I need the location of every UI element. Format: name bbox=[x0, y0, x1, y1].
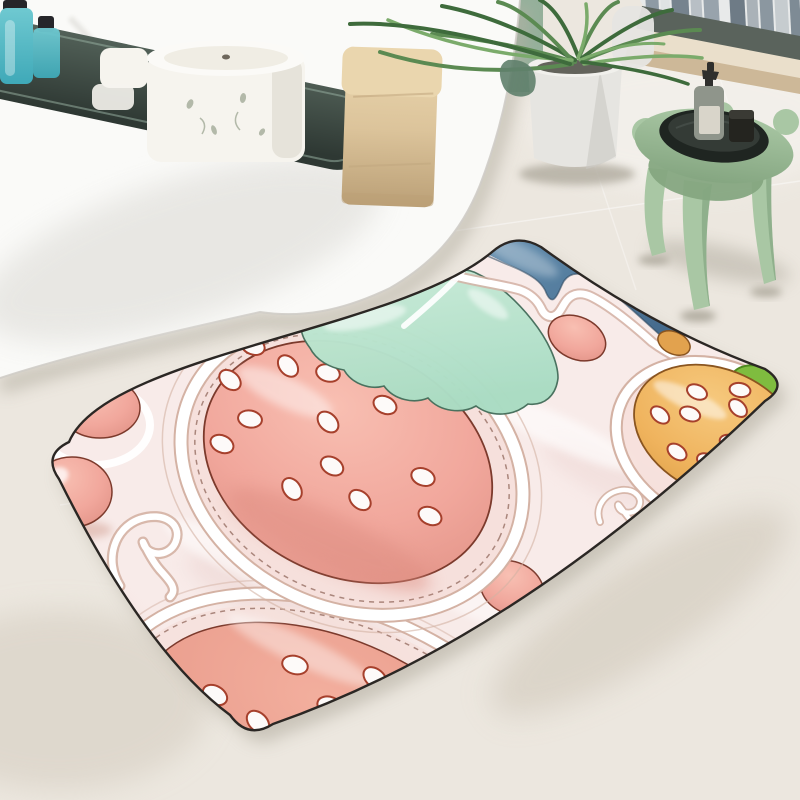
black-jar bbox=[729, 110, 754, 142]
bottle-label bbox=[699, 106, 720, 134]
stool-foot-shadow bbox=[638, 255, 670, 265]
jar-lid bbox=[729, 110, 754, 119]
screenshot bbox=[0, 0, 800, 800]
candle-wick bbox=[222, 55, 230, 60]
bottle-body bbox=[33, 28, 60, 78]
pump-bottle-teal bbox=[0, 0, 33, 84]
bathroom-scene bbox=[0, 0, 800, 800]
pump-knob bbox=[707, 62, 714, 72]
bottle-body bbox=[0, 8, 33, 84]
plant-pot bbox=[528, 55, 622, 169]
skyscraper bbox=[774, 0, 789, 36]
stool-foot-shadow bbox=[750, 287, 782, 297]
soap-bar-2 bbox=[92, 84, 134, 110]
bottle-highlight bbox=[5, 20, 15, 76]
candle-side-shade bbox=[272, 58, 302, 158]
stool-foot-shadow bbox=[680, 310, 716, 322]
soap-bar bbox=[100, 48, 148, 88]
towel bbox=[337, 46, 442, 207]
candle-jar bbox=[147, 40, 305, 162]
